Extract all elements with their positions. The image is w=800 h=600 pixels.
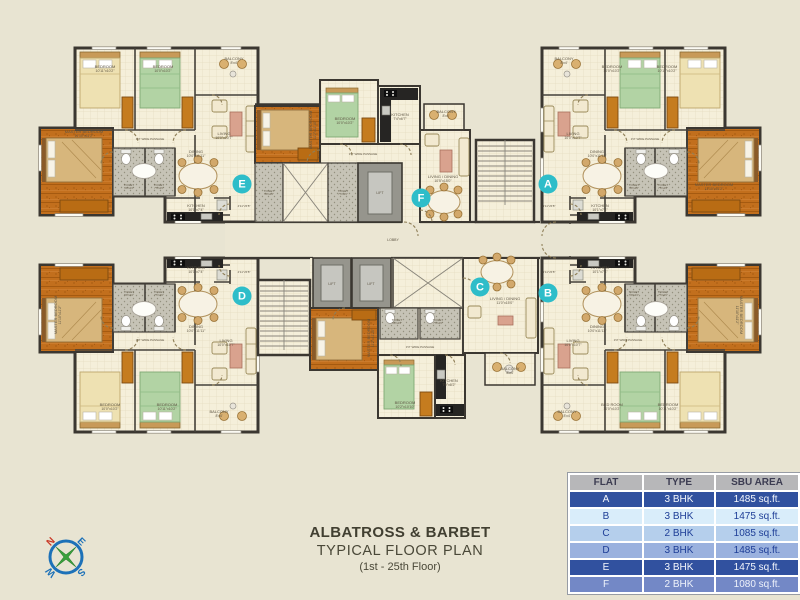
room-label: BEDROOM10'0"x10'2" (100, 402, 121, 411)
room-label: TOILET5'8"x4'2" (124, 290, 135, 297)
area-cell: 1485 sq.ft. (716, 492, 798, 507)
room-label: BEDROOM10'0"x10'2" (602, 64, 623, 73)
room-label: BEDROOM10'11"x10'2" (95, 64, 116, 73)
table-row-flat-b: B3 BHK1475 sq.ft. (570, 509, 798, 524)
room-label: LIFT (328, 282, 336, 286)
room-label: LOBBY (387, 238, 399, 242)
flat-badge-letter: F (418, 192, 425, 204)
room-label: BEDROOM10'11"x10'2" (658, 402, 679, 411)
lobby (225, 222, 540, 258)
table-header-cell: FLAT (570, 475, 642, 490)
type-cell: 3 BHK (644, 509, 714, 524)
flat-cell: D (570, 543, 642, 558)
flat-badge-a: A (539, 175, 558, 194)
room-label: TOILET7'5"x4'0" (338, 189, 349, 196)
central-core-upper (255, 80, 534, 236)
type-cell: 3 BHK (644, 492, 714, 507)
room-label: LIFT (376, 191, 384, 195)
flat-cell: F (570, 577, 642, 592)
flat-cell: C (570, 526, 642, 541)
table-row-flat-e: E3 BHK1475 sq.ft. (570, 560, 798, 575)
table-header-cell: TYPE (644, 475, 714, 490)
table-row-flat-f: F2 BHK1080 sq.ft. (570, 577, 798, 592)
room-label: KITCHEN7'9"x8'2" (440, 378, 458, 387)
flat-a-wing (541, 47, 762, 236)
compass-star-icon (56, 547, 76, 567)
room-label: BEDROOM10'11"x10'2" (657, 64, 678, 73)
flat-badge-d: D (233, 287, 252, 306)
area-cell: 1085 sq.ft. (716, 526, 798, 541)
room-label: TOILET5'8"x4'2" (392, 318, 403, 325)
flat-badge-letter: C (476, 281, 484, 293)
room-label: TOILET5'8"x4'2" (629, 290, 640, 297)
table-row-flat-a: A3 BHK1485 sq.ft. (570, 492, 798, 507)
type-cell: 2 BHK (644, 526, 714, 541)
room-label: 4'11"x5'8" (543, 270, 556, 274)
room-label: 3'3" WIDE PASSAGE (349, 152, 378, 156)
plan-title: ALBATROSS & BARBET (270, 524, 530, 541)
flat-badge-letter: D (238, 290, 246, 302)
room-label: 3'3" WIDE PASSAGE (614, 338, 643, 342)
flat-badge-e: E (233, 175, 252, 194)
room-label: TOILET7'5"x4'0" (154, 290, 165, 297)
room-label: 4'11"x5'8" (238, 270, 251, 274)
room-label: 4'11"x5'8" (238, 204, 251, 208)
room-label: BEDROOM10'2"x10'10" (395, 400, 416, 409)
room-label: BEDROOM10'0"x10'2" (153, 64, 174, 73)
room-label: 4'11"x5'8" (543, 204, 556, 208)
room-label: KITCHEN7'4"x6'7" (391, 112, 409, 121)
area-cell: 1080 sq.ft. (716, 577, 798, 592)
room-label: 3'3" WIDE PASSAGE (136, 137, 165, 141)
room-label: 3'3" WIDE PASSAGE (631, 137, 660, 141)
flat-badge-f: F (412, 189, 431, 208)
stair-flight (283, 163, 328, 222)
room-label: TOILET7'5"x4'0" (658, 183, 669, 190)
central-core-lower (258, 253, 538, 418)
room-label: TOILET5'8"x4'2" (124, 183, 135, 190)
room-label: 3'3" WIDE PASSAGE (406, 345, 435, 349)
plan-caption: ALBATROSS & BARBET TYPICAL FLOOR PLAN (1… (270, 524, 530, 573)
room-label: TOILET5'8"x4'2" (264, 189, 275, 196)
type-cell: 3 BHK (644, 543, 714, 558)
room-label: BEDROOM10'0"x10'2" (335, 116, 356, 125)
flat-badge-b: B (539, 284, 558, 303)
flat-badge-c: C (471, 278, 490, 297)
room-label: TOILET7'5"x4'0" (433, 318, 444, 325)
flat-badge-letter: B (544, 287, 552, 299)
room-label: TOILET7'5"x4'0" (658, 290, 669, 297)
type-cell: 3 BHK (644, 560, 714, 575)
room-label: BEDROOM10'11"x10'2" (157, 402, 178, 411)
plan-floor-range: (1st - 25th Floor) (270, 561, 530, 573)
room-label: LIFT (367, 282, 375, 286)
room-label: TOILET7'5"x4'0" (154, 183, 165, 190)
table-header-row: FLATTYPESBU AREA (570, 475, 798, 490)
room-label: KITCHEN10'1"x7'4" (591, 265, 609, 274)
room-label: BED ROOM10'0"x10'2" (601, 402, 623, 411)
plan-subtitle: TYPICAL FLOOR PLAN (270, 543, 530, 559)
flat-badge-letter: E (238, 178, 245, 190)
staircase-upper (476, 140, 534, 222)
area-cell: 1485 sq.ft. (716, 543, 798, 558)
flat-cell: E (570, 560, 642, 575)
flat-cell: B (570, 509, 642, 524)
flat-badge-letter: A (544, 178, 552, 190)
stair-flight (393, 258, 463, 308)
flat-cell: A (570, 492, 642, 507)
table-row-flat-d: D3 BHK1485 sq.ft. (570, 543, 798, 558)
room-label: 3'3" WIDE PASSAGE (136, 338, 165, 342)
area-cell: 1475 sq.ft. (716, 509, 798, 524)
room-label: KITCHEN10'1"x7'4" (187, 265, 205, 274)
flat-area-table: FLATTYPESBU AREA A3 BHK1485 sq.ft.B3 BHK… (568, 473, 800, 594)
table-row-flat-c: C2 BHK1085 sq.ft. (570, 526, 798, 541)
compass-rose: N E S W (43, 536, 87, 579)
room-label: TOILET5'8"x4'2" (629, 183, 640, 190)
area-cell: 1475 sq.ft. (716, 560, 798, 575)
flat-e-wing (39, 47, 260, 236)
room-label: KITCHEN10'1"x7'4" (591, 203, 609, 212)
type-cell: 2 BHK (644, 577, 714, 592)
floor-plan-page: EFADCB BEDROOM10'11"x10'2"BEDROOM10'0"x1… (0, 0, 800, 600)
table-header-cell: SBU AREA (716, 475, 798, 490)
room-label: KITCHEN10'1"x7'4" (187, 203, 205, 212)
staircase-lower (258, 280, 310, 355)
